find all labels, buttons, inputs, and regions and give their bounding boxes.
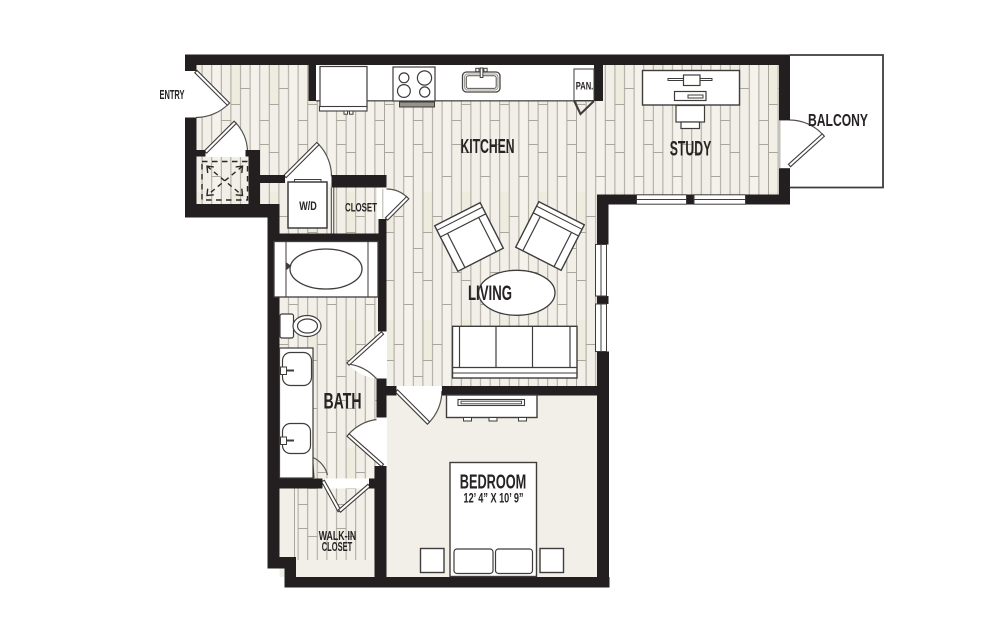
- svg-text:CLOSET: CLOSET: [345, 203, 377, 215]
- svg-text:KITCHEN: KITCHEN: [461, 135, 515, 158]
- svg-text:LIVING: LIVING: [468, 282, 512, 305]
- svg-text:BALCONY: BALCONY: [808, 110, 868, 130]
- svg-text:W/D: W/D: [299, 201, 317, 213]
- svg-text:12’ 4” X 10’ 9”: 12’ 4” X 10’ 9”: [464, 491, 524, 506]
- svg-text:PAN.: PAN.: [576, 81, 594, 93]
- svg-text:CLOSET: CLOSET: [322, 539, 353, 554]
- svg-text:ENTRY: ENTRY: [160, 87, 185, 102]
- svg-text:STUDY: STUDY: [670, 138, 712, 161]
- svg-text:BATH: BATH: [324, 389, 362, 414]
